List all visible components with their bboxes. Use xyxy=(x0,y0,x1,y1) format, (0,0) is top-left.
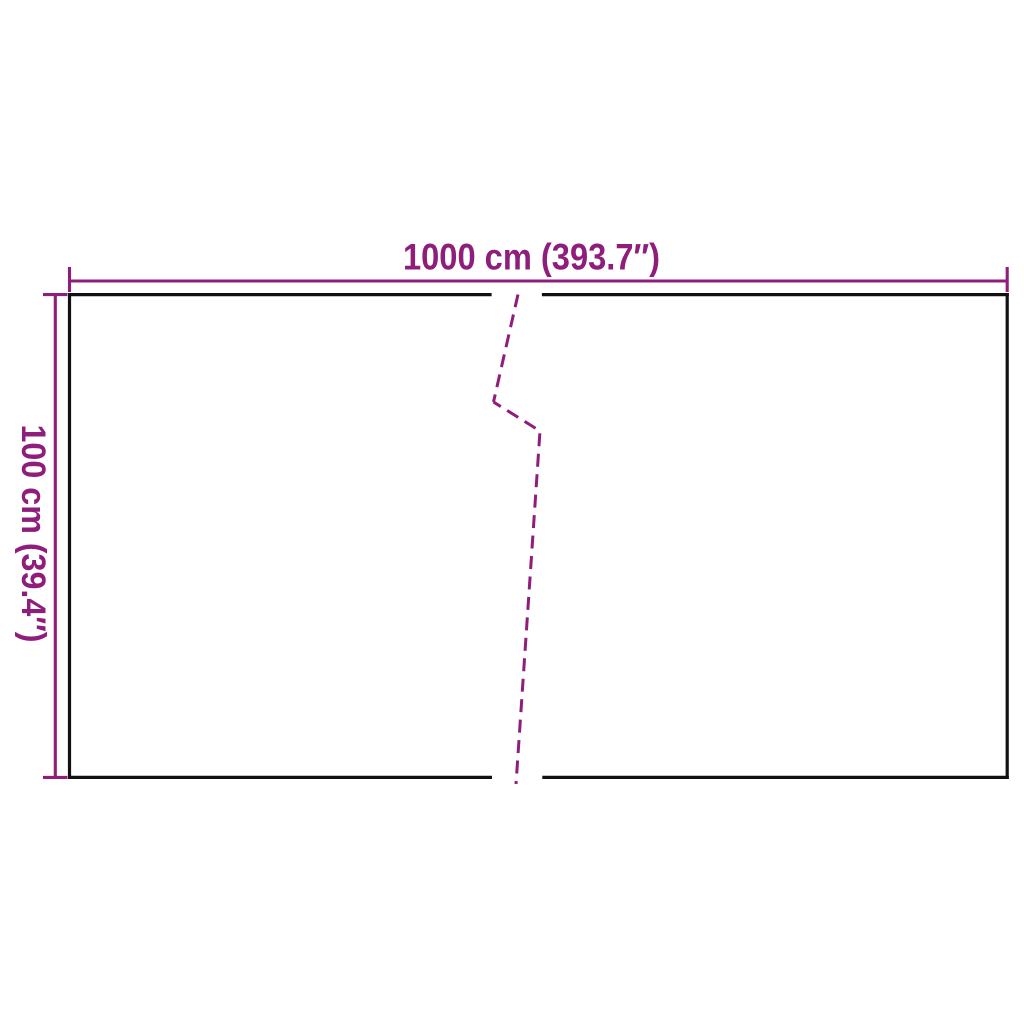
svg-text:1000 cm (393.7″): 1000 cm (393.7″) xyxy=(403,236,660,277)
svg-text:100 cm (39.4″): 100 cm (39.4″) xyxy=(14,425,52,643)
